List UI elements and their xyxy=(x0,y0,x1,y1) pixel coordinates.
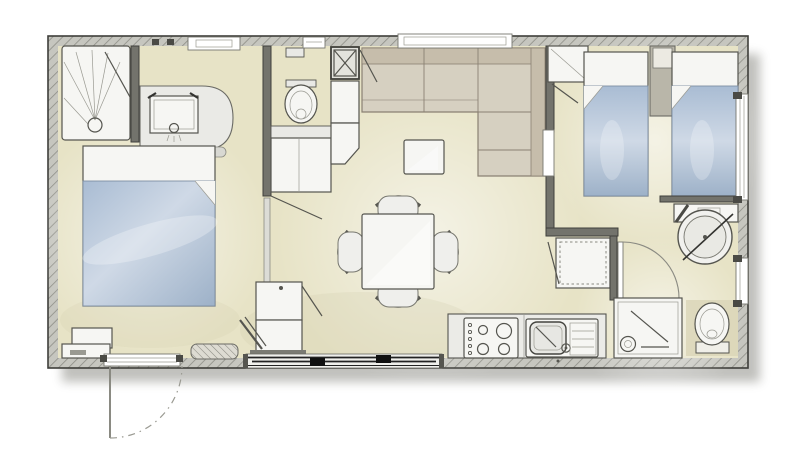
vanity-basin xyxy=(150,96,198,133)
bedroom-hall-wall xyxy=(546,228,618,236)
duvet-highlight xyxy=(690,120,714,180)
cabinet-detail xyxy=(70,350,86,355)
bathroom-toilet xyxy=(686,300,738,356)
chair-seat xyxy=(338,232,364,272)
sliding-glass-door xyxy=(243,354,444,368)
wc-counter xyxy=(271,126,331,138)
roof-vent-1 xyxy=(152,39,159,45)
kitchen-sink xyxy=(526,319,598,363)
hob-plate xyxy=(464,318,518,358)
glass-door-handle-2 xyxy=(376,355,391,363)
shower-partition-wall xyxy=(131,46,139,142)
twin-open-door-leaf xyxy=(543,130,554,176)
cabinet-knob xyxy=(279,286,283,290)
toilet xyxy=(285,80,317,123)
sofa-back-top xyxy=(362,48,545,64)
sliding-door-panel xyxy=(264,198,270,282)
window-master-top xyxy=(188,37,240,50)
bathroom-door-leaf xyxy=(618,242,623,298)
wc-cabinet xyxy=(271,138,331,192)
double-bed xyxy=(78,146,221,306)
sink-faucet-dot xyxy=(565,347,568,350)
glass-door-end-left xyxy=(243,354,248,368)
shower-cabin xyxy=(62,46,130,140)
sink-handle-dot xyxy=(557,360,560,363)
sink-bowl xyxy=(530,322,566,354)
master-partition-wall xyxy=(263,46,271,196)
chair-left xyxy=(338,231,364,273)
duvet-highlight xyxy=(600,120,624,180)
shower-tray xyxy=(62,46,130,140)
bathroom-shower xyxy=(614,298,682,358)
technical-column xyxy=(331,47,359,164)
refrigerator xyxy=(548,238,610,288)
bathroom-left-wall xyxy=(610,236,617,300)
headboard-divider xyxy=(650,46,675,116)
wall-niche xyxy=(286,48,304,57)
floorplan-image xyxy=(0,0,800,466)
divider-niche xyxy=(653,48,672,68)
dining-table xyxy=(362,214,434,289)
chair-seat xyxy=(432,232,458,272)
glass-door-end-right xyxy=(439,354,444,368)
shower-tray xyxy=(614,298,682,358)
window-living xyxy=(398,34,512,48)
roof-vent-2 xyxy=(167,39,174,45)
twin-wall-lower xyxy=(546,174,554,234)
basin-drain xyxy=(703,235,707,239)
coffee-table xyxy=(404,140,444,174)
fridge-body xyxy=(556,238,610,288)
tall-cabinet-1 xyxy=(331,81,359,123)
storage-cabinet-upper xyxy=(256,282,302,320)
window-wc xyxy=(303,37,325,48)
floor-vent xyxy=(191,344,238,359)
door-threshold xyxy=(104,354,180,366)
single-bed-1 xyxy=(584,52,648,196)
bedroom-bathroom-wall xyxy=(660,196,738,202)
hob xyxy=(464,318,518,358)
glass-door-handle-1 xyxy=(310,358,325,366)
chair-right xyxy=(432,231,458,273)
single-bed-2 xyxy=(672,52,738,196)
